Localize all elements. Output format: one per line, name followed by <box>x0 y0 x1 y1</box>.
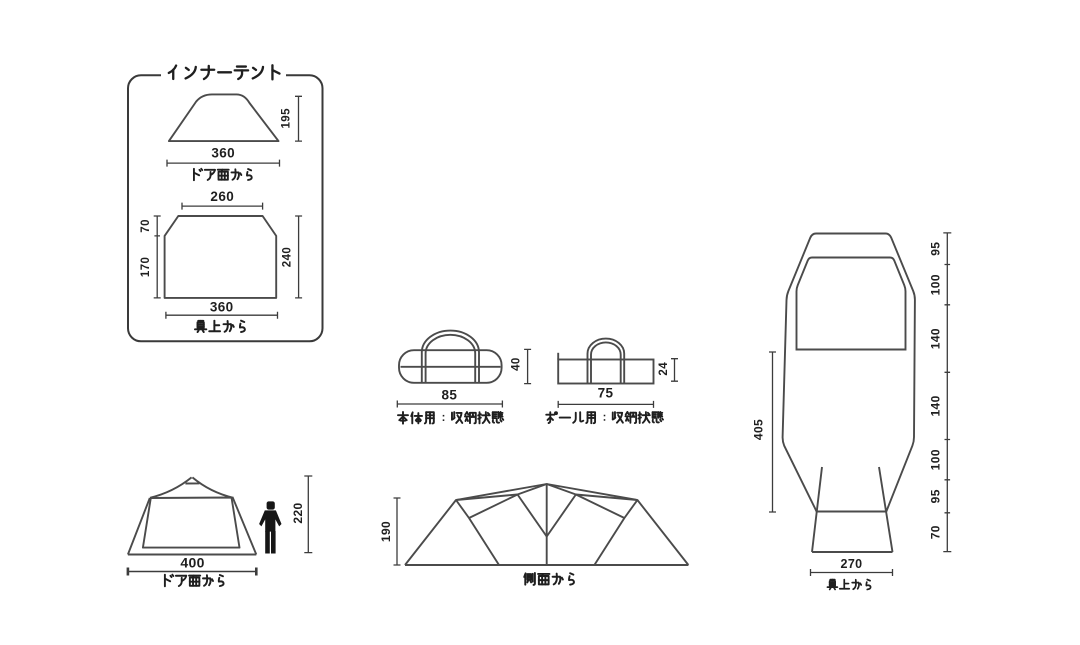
svg-text:260: 260 <box>210 189 234 204</box>
svg-text:240: 240 <box>282 247 294 267</box>
svg-text:400: 400 <box>180 554 205 570</box>
svg-text:360: 360 <box>211 146 235 161</box>
svg-text:95: 95 <box>928 242 942 256</box>
svg-text:70: 70 <box>928 525 942 539</box>
svg-text:405: 405 <box>752 419 766 440</box>
svg-text:140: 140 <box>928 395 942 416</box>
svg-text:190: 190 <box>379 521 393 542</box>
svg-text:95: 95 <box>928 489 942 503</box>
svg-text:220: 220 <box>291 502 305 523</box>
svg-text:270: 270 <box>840 557 862 571</box>
svg-text:75: 75 <box>598 386 614 401</box>
svg-text:70: 70 <box>140 219 152 233</box>
svg-text:195: 195 <box>281 108 293 129</box>
svg-text:24: 24 <box>658 362 670 376</box>
svg-text:85: 85 <box>441 387 457 402</box>
svg-text:40: 40 <box>510 357 522 371</box>
svg-text:100: 100 <box>928 449 942 470</box>
svg-text:360: 360 <box>210 299 234 314</box>
svg-text:100: 100 <box>928 274 942 295</box>
svg-text:170: 170 <box>140 257 152 277</box>
svg-text:140: 140 <box>928 328 942 349</box>
